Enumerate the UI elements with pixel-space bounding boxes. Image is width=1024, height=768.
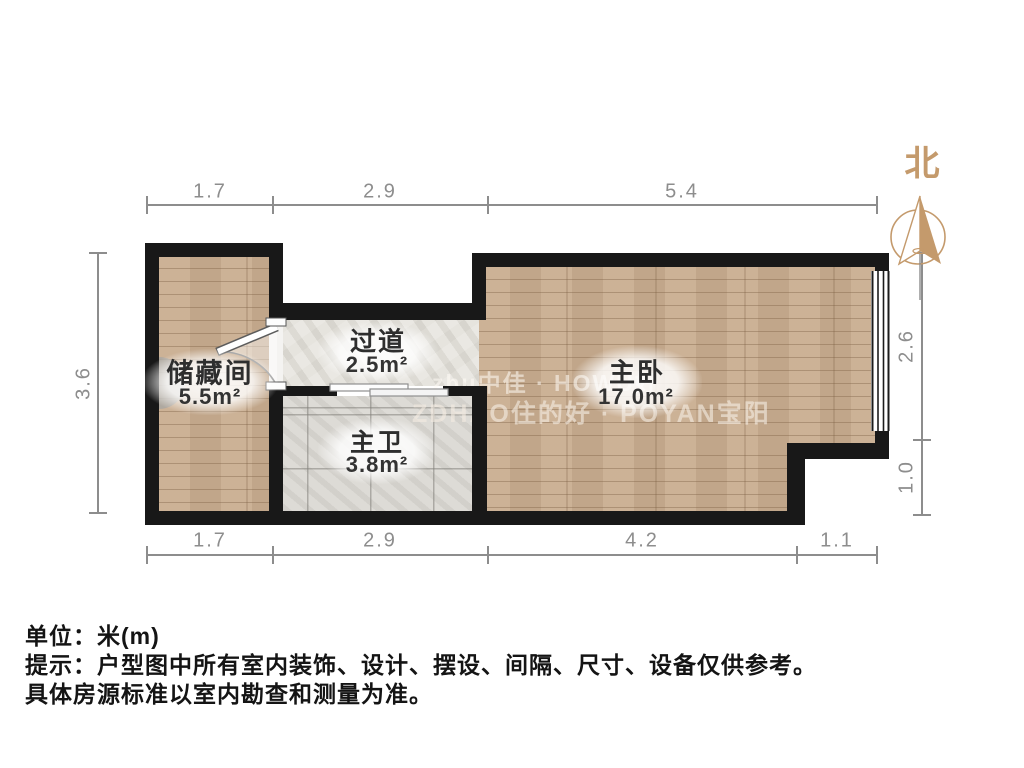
window-glass [871, 271, 890, 431]
compass-icon [891, 196, 945, 300]
floor-plan-page: zhu中佳 · HOWU好 ZDHAO住的好 · POYAN宝阳 [0, 0, 1024, 768]
bedroom-window [871, 271, 890, 431]
dim-left-1: 3.6 [73, 366, 96, 400]
dim-bottom-1: 1.7 [193, 530, 227, 553]
dim-bottom-2: 2.9 [363, 530, 397, 553]
bedroom-area: 17.0m² [598, 384, 674, 410]
dim-top-2: 2.9 [363, 181, 397, 204]
dim-right-2: 1.0 [896, 460, 919, 494]
dim-top-3: 5.4 [665, 181, 699, 204]
dim-top-1: 1.7 [193, 181, 227, 204]
sliding-door-panel-2 [370, 389, 448, 396]
sliding-door [330, 384, 448, 396]
bathroom-area: 3.8m² [346, 452, 408, 478]
door-jamb-top [266, 318, 286, 326]
north-compass-label: 北 [904, 136, 939, 187]
hallway-area: 2.5m² [346, 352, 408, 378]
dim-bottom-3: 4.2 [625, 530, 659, 553]
dim-bottom-4: 1.1 [820, 530, 854, 553]
footnote-tip-2: 具体房源标准以室内勘查和测量为准。 [25, 675, 433, 709]
dim-right-1: 2.6 [896, 329, 919, 363]
storage-room-area: 5.5m² [179, 384, 241, 410]
